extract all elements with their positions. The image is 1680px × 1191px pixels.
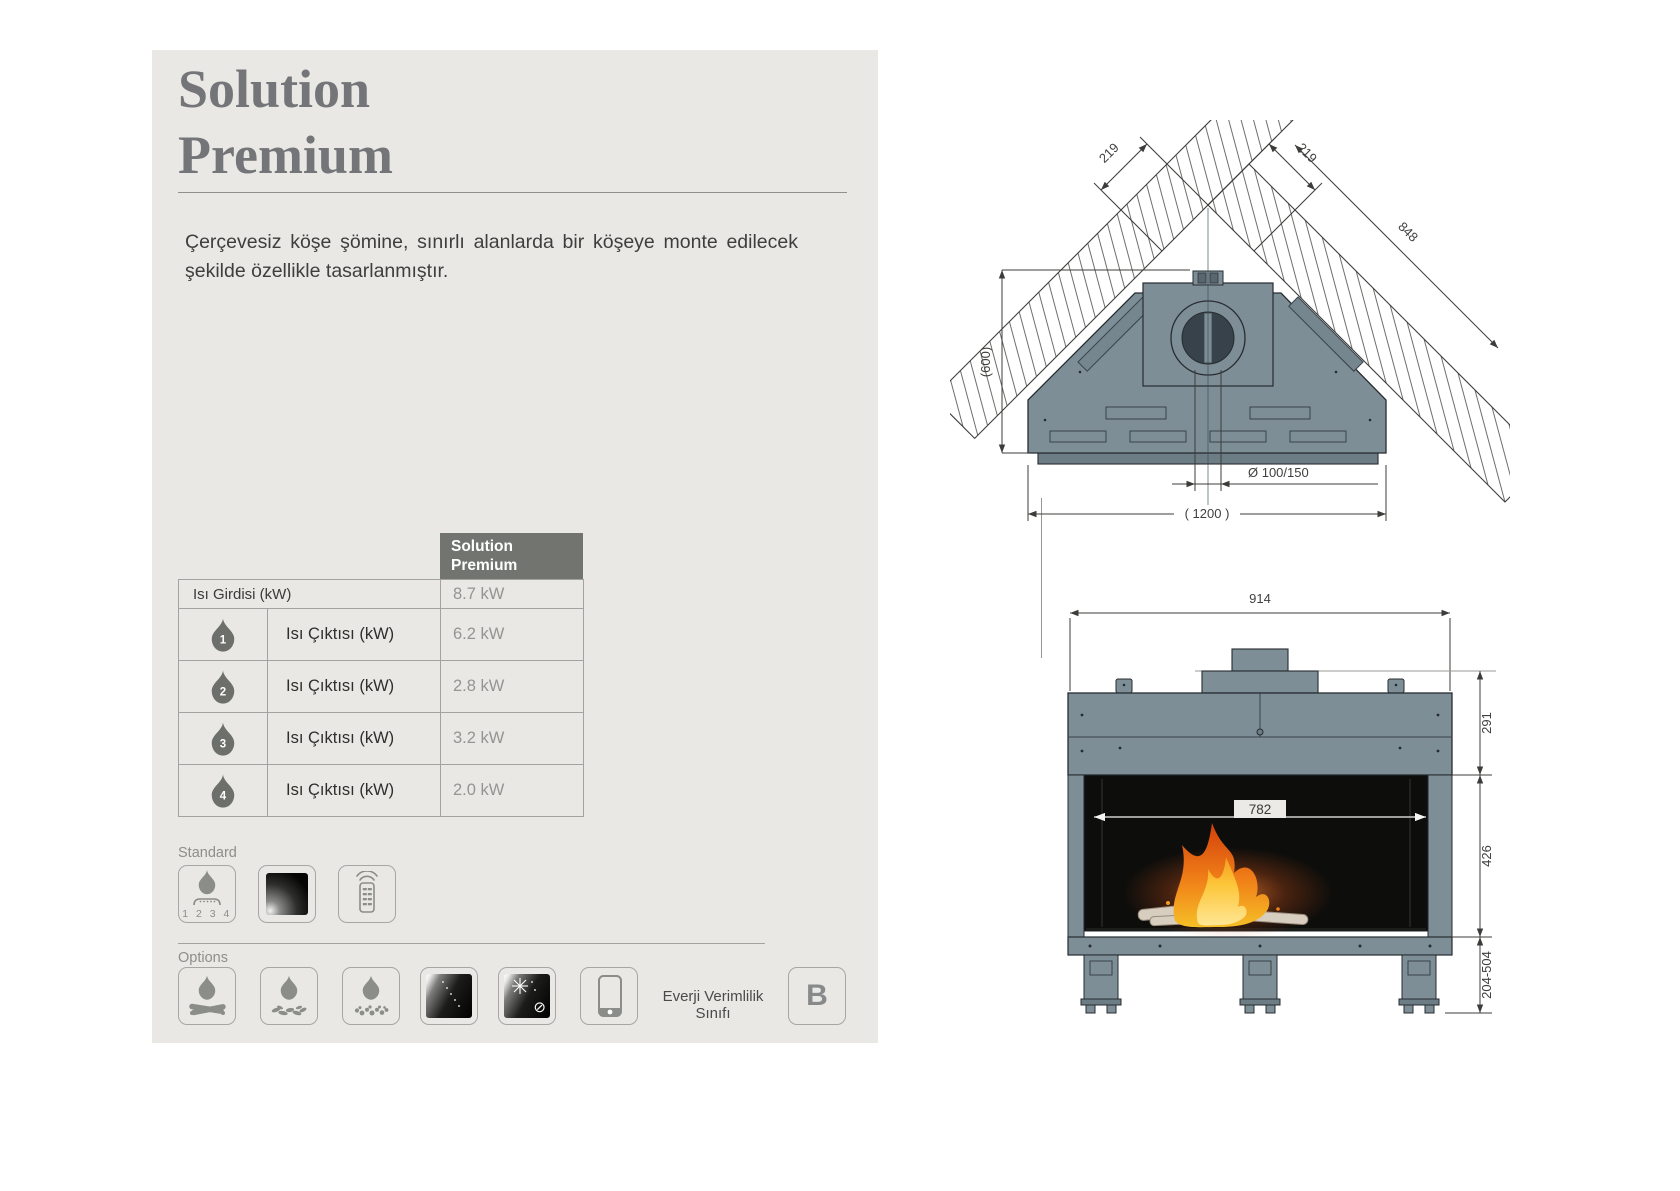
table-row: 1 Isı Çıktısı (kW) 6.2 kW [179, 608, 583, 660]
flame-level-icon: 1 [179, 609, 268, 660]
burner-flame-icon [187, 869, 227, 907]
row-label: Isı Girdisi (kW) [179, 580, 440, 608]
no-reflection-symbol: ⊘ [533, 998, 546, 1016]
row-label: Isı Çıktısı (kW) [268, 765, 440, 816]
title-underline [178, 192, 847, 193]
log-set-icon [178, 967, 236, 1025]
anti-reflective-glass-icon: ⊘ [498, 967, 556, 1025]
dim-flue-label: Ø 100/150 [1248, 465, 1309, 480]
row-label: Isı Çıktısı (kW) [268, 713, 440, 764]
table-row: Isı Girdisi (kW) 8.7 kW [179, 580, 583, 608]
table-row: 2 Isı Çıktısı (kW) 2.8 kW [179, 660, 583, 712]
dim-top-height-label: 291 [1479, 712, 1494, 734]
product-title-line2: Premium [178, 122, 393, 188]
four-step-burner-icon: 1 2 3 4 [178, 865, 236, 923]
product-panel: Solution Premium Çerçevesiz köşe şömine,… [152, 50, 878, 1043]
flame-level-icon: 3 [179, 713, 268, 764]
fireplace-legs [1068, 937, 1452, 1013]
row-label: Isı Çıktısı (kW) [268, 609, 440, 660]
svg-text:4: 4 [220, 790, 227, 802]
glass-panel-surface [426, 974, 472, 1018]
row-value: 6.2 kW [440, 609, 583, 660]
energy-class-letter: B [806, 979, 828, 1013]
dim-leg-height-label: 204-504 [1479, 951, 1494, 999]
row-label: Isı Çıktısı (kW) [268, 661, 440, 712]
burner-steps-label: 1 2 3 4 [182, 908, 232, 920]
svg-text:3: 3 [220, 738, 226, 750]
top-view-drawing: (600) 219 219 848 Ø 100/150 ( 1200 ) [950, 120, 1510, 560]
spec-table: Isı Girdisi (kW) 8.7 kW 1 Isı Çıktısı (k… [178, 579, 584, 817]
row-value: 2.0 kW [440, 765, 583, 816]
dim-wall-left-label: 219 [1096, 140, 1122, 166]
section-divider [178, 943, 765, 944]
pebbles-icon [342, 967, 400, 1025]
flame-level-icon: 2 [179, 661, 268, 712]
energy-class-label: Everji Verimlilik Sınıfı [648, 988, 778, 1022]
smartphone-app-icon [580, 967, 638, 1025]
row-value: 8.7 kW [440, 580, 583, 608]
product-title: Solution Premium [178, 56, 393, 188]
standard-section-label: Standard [178, 845, 237, 861]
black-glass-icon [258, 865, 316, 923]
flame-level-icon: 4 [179, 765, 268, 816]
spec-table-header: Solution Premium [440, 533, 583, 579]
wood-chips-icon [260, 967, 318, 1025]
dim-depth-label: (600) [978, 347, 993, 377]
row-value: 3.2 kW [440, 713, 583, 764]
energy-class-badge: B [788, 967, 846, 1025]
remote-control-icon [338, 865, 396, 923]
dim-firebox-height-label: 426 [1479, 845, 1494, 867]
svg-text:2: 2 [220, 686, 226, 698]
table-row: 3 Isı Çıktısı (kW) 3.2 kW [179, 712, 583, 764]
dim-width-label: ( 1200 ) [1185, 506, 1230, 521]
front-view-drawing: 914 782 [1060, 585, 1500, 1025]
glass-panel-icon [420, 967, 478, 1025]
product-title-line1: Solution [178, 56, 393, 122]
row-value: 2.8 kW [440, 661, 583, 712]
dim-wall-outer-label: 848 [1395, 219, 1421, 245]
product-description: Çerçevesiz köşe şömine, sınırlı alanlard… [185, 228, 798, 286]
table-row: 4 Isı Çıktısı (kW) 2.0 kW [179, 764, 583, 816]
dim-wall-right-label: 219 [1294, 140, 1320, 166]
dim-opening-label: 782 [1249, 802, 1272, 817]
svg-text:1: 1 [220, 634, 227, 646]
options-section-label: Options [178, 950, 228, 966]
black-glass-surface [266, 873, 308, 915]
anti-reflective-surface: ⊘ [504, 974, 550, 1018]
dim-width-label: 914 [1249, 591, 1271, 606]
page-root: { "panel": { "title_line1": "Solution", … [0, 0, 1680, 1191]
